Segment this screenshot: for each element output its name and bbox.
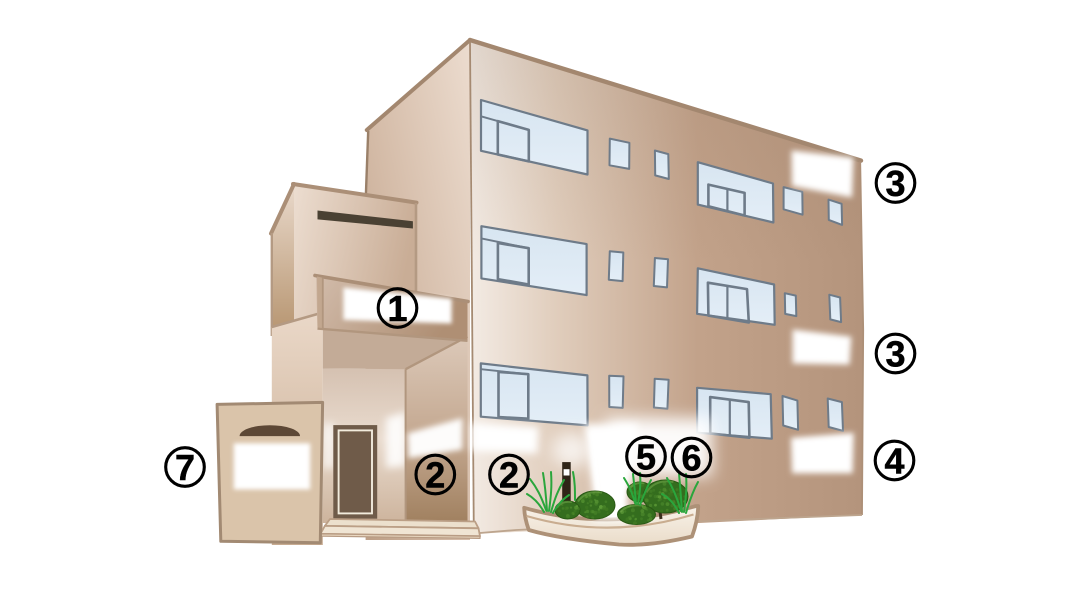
svg-text:4: 4 [884, 441, 904, 482]
svg-text:2: 2 [499, 455, 519, 496]
svg-text:1: 1 [387, 288, 407, 329]
svg-text:2: 2 [425, 455, 445, 496]
svg-text:3: 3 [885, 334, 905, 375]
svg-text:7: 7 [175, 447, 195, 488]
svg-text:3: 3 [885, 163, 905, 204]
svg-text:5: 5 [636, 437, 656, 478]
svg-text:6: 6 [681, 438, 701, 479]
